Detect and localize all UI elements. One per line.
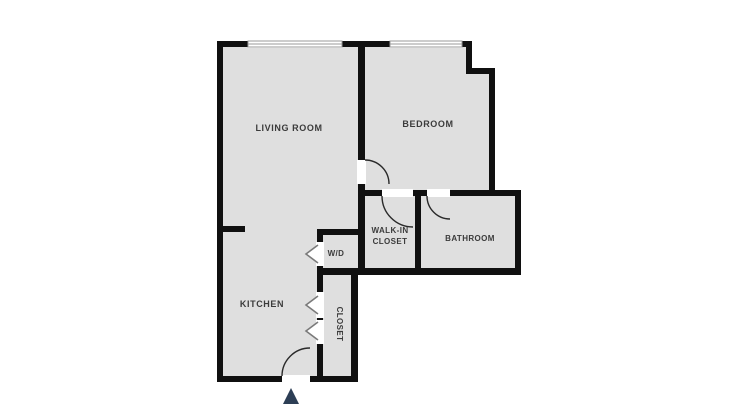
room-label-wd: W/D (328, 249, 345, 258)
wall-left (217, 41, 223, 382)
room-label-living-room: LIVING ROOM (255, 123, 322, 133)
wall-bedroom-right (489, 68, 495, 196)
floor-plan-drawing: LIVING ROOM BEDROOM WALK-IN CLOSET BATHR… (0, 0, 736, 414)
room-label-closet: CLOSET (335, 307, 344, 342)
opening-entry-door (282, 375, 310, 384)
room-label-bedroom: BEDROOM (402, 119, 453, 129)
room-label-bathroom: BATHROOM (445, 234, 495, 243)
room-label-walkin-line2: CLOSET (373, 237, 408, 246)
apartment-floor (217, 41, 521, 382)
opening-walkin-door (382, 189, 413, 197)
wall-walkin-bathroom-divider (415, 196, 421, 275)
opening-bathroom-door (427, 189, 450, 197)
entrance-arrow-icon (283, 388, 299, 404)
opening-bedroom-door (357, 160, 366, 184)
wall-kitchen-stub (217, 226, 245, 232)
wall-wd-top (317, 229, 365, 235)
wall-bathroom-right (515, 190, 521, 275)
room-label-kitchen: KITCHEN (240, 299, 284, 309)
wall-living-bedroom-divider (358, 41, 365, 275)
wall-closet-right (351, 268, 358, 382)
floor-plan-canvas: LIVING ROOM BEDROOM WALK-IN CLOSET BATHR… (0, 0, 736, 414)
room-label-walkin-line1: WALK-IN (371, 226, 408, 235)
